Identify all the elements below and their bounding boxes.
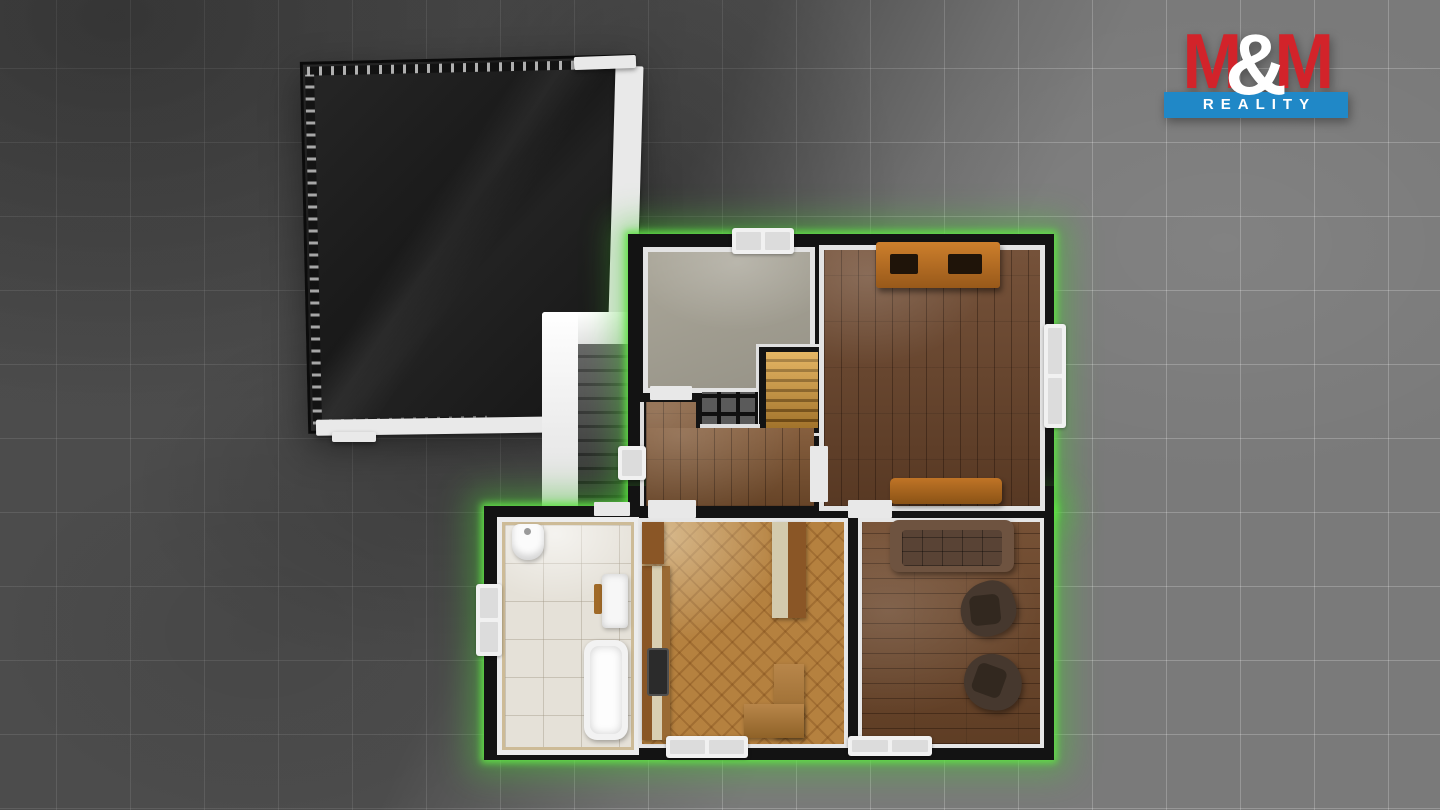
window-kitchen — [666, 736, 748, 758]
armchair-cushion — [969, 593, 1002, 626]
window-pane — [765, 232, 790, 250]
bathroom-shelf — [594, 584, 602, 614]
window-pane — [709, 740, 744, 754]
kitchen-floor — [642, 522, 844, 744]
interior-staircase — [766, 352, 818, 428]
door-panel — [622, 450, 642, 476]
window-pane — [892, 740, 928, 752]
building-trim-tab — [332, 432, 376, 442]
hallway-floor-main — [646, 428, 814, 506]
sofa-cushions — [902, 530, 1002, 566]
window-pane — [1048, 328, 1062, 374]
window-study — [732, 228, 794, 254]
logo-ampersand: & — [1225, 34, 1287, 96]
desk-drawer — [948, 254, 982, 274]
bedroom-desk — [876, 242, 1000, 288]
kitchen-sink — [647, 648, 669, 696]
sofa — [890, 520, 1014, 572]
window-bathroom — [476, 584, 502, 656]
door-gap-bathroom — [594, 502, 630, 516]
bedroom-bench — [890, 478, 1002, 504]
window-living-room — [848, 736, 932, 756]
bathroom-sink — [602, 574, 628, 628]
logo-mm-wordmark: M & M — [1164, 28, 1348, 90]
building-trim-top-right — [574, 55, 636, 70]
door-hall-exterior — [618, 446, 646, 480]
bedroom-floor — [824, 250, 1040, 506]
door-gap-hall-living — [848, 500, 892, 518]
roof-ridge-hatch-left — [305, 75, 322, 425]
wall-trim-sliver — [700, 424, 760, 428]
kitchen-cabinet-top — [642, 522, 664, 564]
desk-drawer — [890, 254, 918, 274]
floor-plan-render: M & M REALITY — [0, 0, 1440, 810]
armchair-cushion — [970, 661, 1008, 699]
window-pane — [480, 588, 498, 618]
window-bedroom — [1044, 324, 1066, 428]
outdoor-stair-wall — [542, 312, 578, 520]
bathtub — [584, 640, 628, 740]
toilet — [512, 524, 544, 560]
kitchen-counter-right — [772, 522, 806, 618]
outdoor-staircase — [578, 344, 634, 522]
door-gap-study-hall — [650, 386, 692, 400]
window-pane — [670, 740, 705, 754]
window-pane — [852, 740, 888, 752]
window-pane — [1048, 378, 1062, 424]
window-pane — [480, 622, 498, 652]
window-pane — [736, 232, 761, 250]
door-gap-hall-kitchen — [648, 500, 696, 518]
kitchen-cabinet-corner — [744, 704, 804, 738]
mm-reality-logo: M & M REALITY — [1164, 28, 1348, 118]
door-gap-hall-bedroom — [810, 446, 828, 502]
